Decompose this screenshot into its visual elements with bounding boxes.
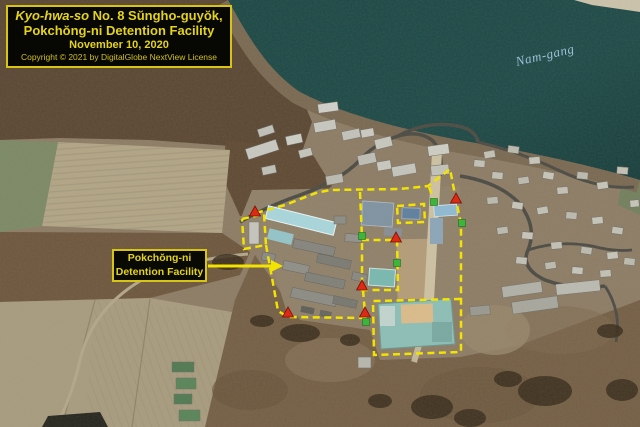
facility-label-line-1: Pokchŏng-ni	[114, 252, 205, 265]
annotated-satellite-image: Kyo-hwa-so No. 8 Sŭngho-guyŏk, Pokchŏng-…	[0, 0, 640, 427]
green-square-marker	[431, 199, 438, 206]
green-square-marker	[359, 233, 366, 240]
facility-label-line-2: Detention Facility	[114, 266, 205, 279]
copyright-notice: Copyright © 2021 by DigitalGlobe NextVie…	[10, 53, 228, 63]
title-box: Kyo-hwa-so No. 8 Sŭngho-guyŏk, Pokchŏng-…	[6, 5, 232, 68]
title-line-2: Pokchŏng-ni Detention Facility	[10, 24, 228, 39]
title-line-1: Kyo-hwa-so No. 8 Sŭngho-guyŏk,	[10, 9, 228, 24]
green-square-marker	[363, 319, 370, 326]
green-square-marker	[459, 220, 466, 227]
title-facility-name: Kyo-hwa-so	[15, 8, 89, 23]
green-square-marker	[394, 260, 401, 267]
image-date: November 10, 2020	[10, 39, 228, 51]
facility-label: Pokchŏng-ni Detention Facility	[112, 249, 207, 282]
